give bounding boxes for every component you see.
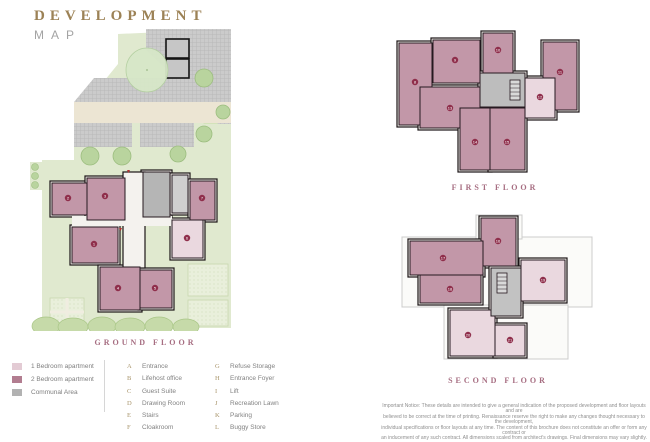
disclaimer-line: individual specifications or floor layou… bbox=[380, 426, 648, 437]
first-floor-label: FIRST FLOOR bbox=[395, 183, 595, 192]
first-floor-plan: 8 9 10 11 12 13 14 15 bbox=[395, 30, 595, 180]
terrace-path bbox=[74, 102, 231, 123]
stairs bbox=[510, 80, 520, 100]
tree bbox=[170, 146, 186, 162]
key-row: JRecreation Lawn bbox=[215, 400, 279, 407]
tree bbox=[195, 69, 213, 87]
refuse-storage-building bbox=[166, 39, 189, 58]
key-label: Entrance bbox=[142, 363, 168, 370]
stairs bbox=[497, 273, 507, 293]
parking-area bbox=[74, 123, 132, 147]
key-label: Buggy Store bbox=[230, 424, 266, 431]
svg-text:16: 16 bbox=[496, 239, 501, 244]
legend-item-communal: Communal Area bbox=[12, 388, 94, 396]
svg-text:14: 14 bbox=[473, 140, 478, 145]
bush-strip bbox=[32, 164, 39, 189]
key-letter: H bbox=[215, 375, 230, 382]
formal-garden bbox=[188, 264, 228, 296]
key-row: CGuest Suite bbox=[127, 388, 185, 395]
svg-text:13: 13 bbox=[448, 106, 453, 111]
second-floor-label: SECOND FLOOR bbox=[398, 376, 598, 385]
second-floor-plan: 16 17 18 19 20 21 bbox=[398, 213, 598, 365]
tree-trunk-dot bbox=[146, 69, 148, 71]
tree bbox=[196, 126, 212, 142]
legend-divider bbox=[104, 360, 105, 412]
tree bbox=[216, 105, 230, 119]
key-letter: C bbox=[127, 388, 142, 395]
tree bbox=[81, 147, 99, 165]
key-label: Parking bbox=[230, 412, 252, 419]
key-letter: K bbox=[215, 412, 230, 419]
legend-item-2bed: 2 Bedroom apartment bbox=[12, 375, 94, 383]
key-letter: D bbox=[127, 400, 142, 407]
one-bed-swatch-icon bbox=[12, 363, 22, 370]
key-row: FCloakroom bbox=[127, 424, 185, 431]
key-label: Cloakroom bbox=[142, 424, 173, 431]
key-row: LBuggy Store bbox=[215, 424, 279, 431]
legend-keys-column-2: GRefuse Storage HEntrance Foyer ILift JR… bbox=[215, 363, 279, 437]
key-label: Lifehost office bbox=[142, 375, 182, 382]
key-letter: E bbox=[127, 412, 142, 419]
svg-text:20: 20 bbox=[466, 333, 471, 338]
key-row: BLifehost office bbox=[127, 375, 185, 382]
svg-text:10: 10 bbox=[496, 48, 501, 53]
key-label: Refuse Storage bbox=[230, 363, 275, 370]
key-label: Entrance Foyer bbox=[230, 375, 274, 382]
key-letter: G bbox=[215, 363, 230, 370]
key-label: Recreation Lawn bbox=[230, 400, 279, 407]
key-row: ILift bbox=[215, 388, 279, 395]
key-label: Guest Suite bbox=[142, 388, 176, 395]
disclaimer-line: an inducement of any such contract. All … bbox=[380, 436, 648, 441]
key-label: Stairs bbox=[142, 412, 159, 419]
key-row: HEntrance Foyer bbox=[215, 375, 279, 382]
two-bed-swatch-icon bbox=[12, 376, 22, 383]
svg-text:18: 18 bbox=[448, 287, 453, 292]
legend-label: 1 Bedroom apartment bbox=[31, 363, 94, 370]
disclaimer-line: believed to be correct at the time of pr… bbox=[380, 415, 648, 426]
legend-label: Communal Area bbox=[31, 389, 78, 396]
key-row: KParking bbox=[215, 412, 279, 419]
key-letter: B bbox=[127, 375, 142, 382]
communal-areas bbox=[143, 172, 188, 217]
legend-item-1bed: 1 Bedroom apartment bbox=[12, 362, 94, 370]
key-letter: L bbox=[215, 424, 230, 431]
svg-text:19: 19 bbox=[541, 278, 546, 283]
svg-text:12: 12 bbox=[538, 95, 543, 100]
key-letter: A bbox=[127, 363, 142, 370]
key-letter: I bbox=[215, 388, 230, 395]
site-plan-ground-floor: 2 3 7 6 1 4 5 bbox=[28, 26, 233, 331]
svg-text:17: 17 bbox=[441, 256, 446, 261]
key-label: Lift bbox=[230, 388, 239, 395]
ground-floor-label: GROUND FLOOR bbox=[28, 338, 263, 347]
svg-text:21: 21 bbox=[508, 338, 513, 343]
key-label: Drawing Room bbox=[142, 400, 185, 407]
key-row: DDrawing Room bbox=[127, 400, 185, 407]
tree bbox=[113, 147, 131, 165]
parking-area bbox=[140, 123, 194, 147]
key-row: AEntrance bbox=[127, 363, 185, 370]
disclaimer-text: Important Notice: These details are inte… bbox=[380, 404, 648, 442]
svg-text:15: 15 bbox=[505, 140, 510, 145]
key-letter: J bbox=[215, 400, 230, 407]
page-title: DEVELOPMENT bbox=[34, 8, 207, 25]
legend-label: 2 Bedroom apartment bbox=[31, 376, 94, 383]
key-row: EStairs bbox=[127, 412, 185, 419]
key-row: GRefuse Storage bbox=[215, 363, 279, 370]
legend-keys-column-1: AEntrance BLifehost office CGuest Suite … bbox=[127, 363, 185, 437]
legend-swatches: 1 Bedroom apartment 2 Bedroom apartment … bbox=[12, 362, 94, 401]
communal-swatch-icon bbox=[12, 389, 22, 396]
key-letter: F bbox=[127, 424, 142, 431]
buggy-store-building bbox=[166, 59, 189, 78]
